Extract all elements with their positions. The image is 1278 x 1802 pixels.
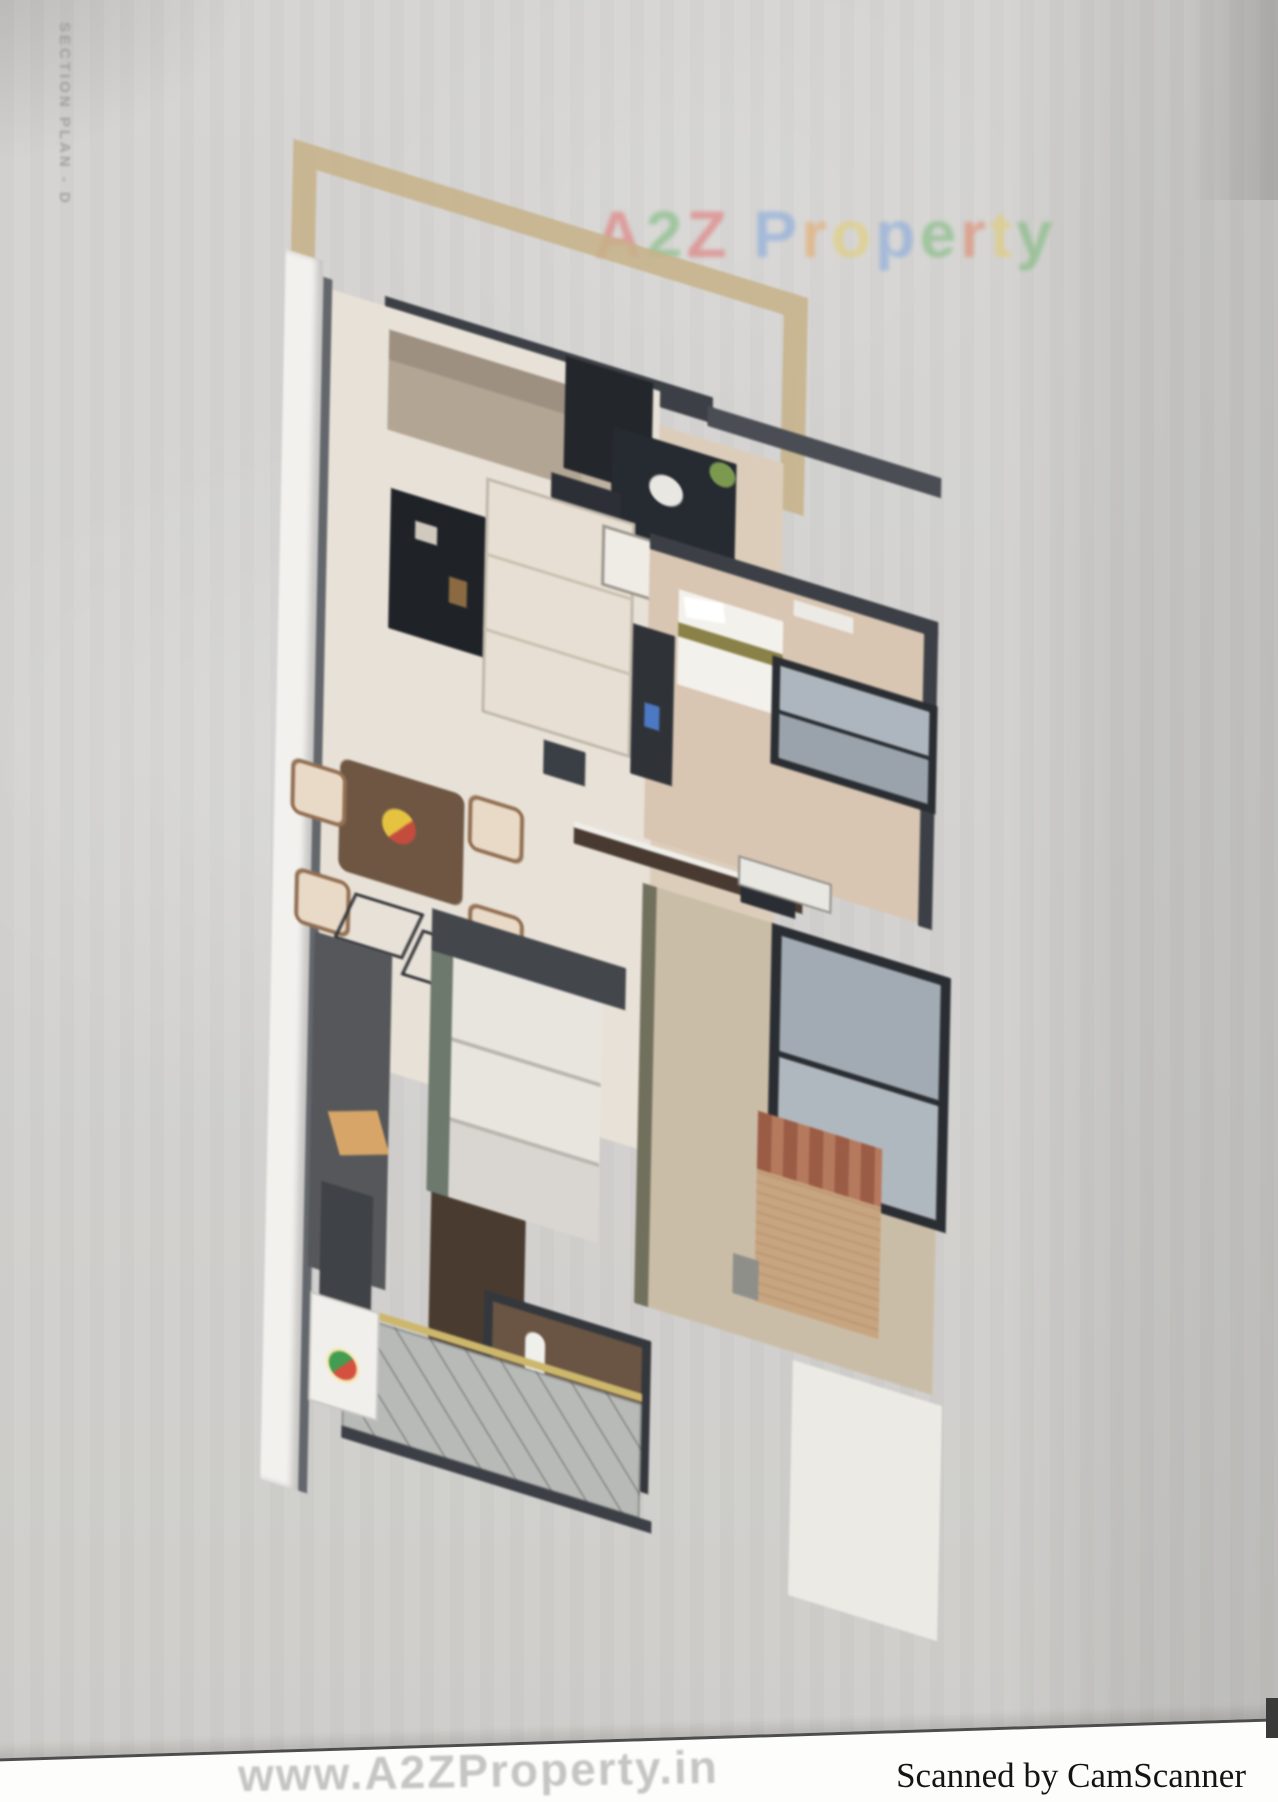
- bedroom2-white-floor: [788, 1360, 942, 1641]
- shelf-blue-item: [644, 702, 659, 731]
- floor-plan-render: [229, 60, 966, 1778]
- cream-l-sofa: [481, 477, 635, 758]
- footer-watermark: www.A2ZProperty.in: [238, 1740, 720, 1802]
- right-edge-shadow: [1188, 0, 1278, 200]
- right-edge-artifact: [1266, 1698, 1278, 1738]
- scanned-page: SECTION PLAN - D A2Z Property: [0, 0, 1278, 1802]
- kitchen-island-front: [448, 957, 602, 1243]
- camscanner-credit: Scanned by CamScanner: [896, 1756, 1246, 1796]
- kitchen-appliance: [319, 1181, 373, 1315]
- side-plan-label: SECTION PLAN - D: [56, 22, 73, 206]
- console-decor-2: [449, 576, 467, 608]
- bedroom2-bench: [732, 1253, 759, 1301]
